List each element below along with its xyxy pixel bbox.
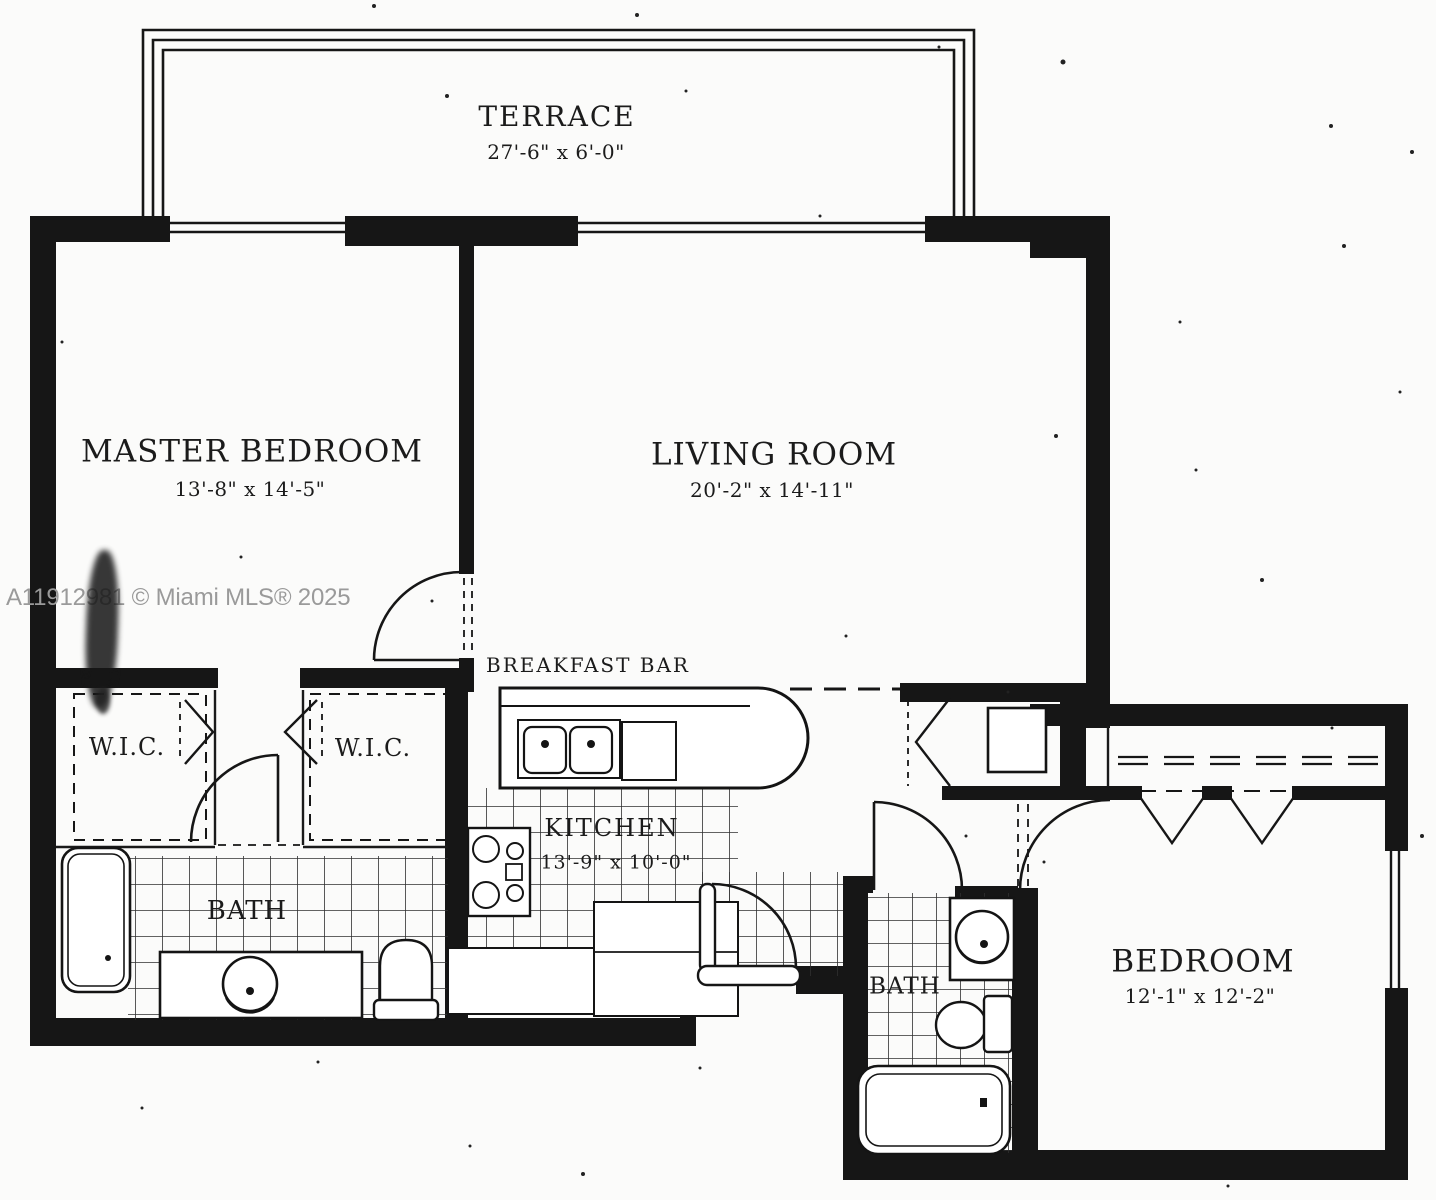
wic-left-label: W.I.C. <box>89 735 165 759</box>
master-bathtub <box>62 848 130 992</box>
stove-cooktop <box>468 828 530 916</box>
bedroom-closet-bifold-left <box>1140 797 1204 843</box>
water-heater-unit <box>988 708 1046 772</box>
second-bath-toilet-tank <box>984 996 1012 1052</box>
kitchen-label: KITCHEN <box>544 816 679 840</box>
dishwasher <box>622 722 676 780</box>
living-room-label: LIVING ROOM <box>651 440 897 471</box>
master-bedroom-label: MASTER BEDROOM <box>81 437 423 468</box>
kitchen-sink-basin-left <box>524 727 566 773</box>
hall-closet-sliding-door <box>1118 757 1380 764</box>
living-room-dims: 20'-2" x 14'-11" <box>690 480 854 500</box>
second-bath-door <box>874 802 962 890</box>
wic-right-label: W.I.C. <box>335 736 411 760</box>
master-bedroom-door <box>374 572 472 660</box>
living-room-slider-window <box>578 223 925 232</box>
kitchen-base-cabinet <box>448 948 594 1014</box>
master-bath-label: BATH <box>207 898 287 924</box>
master-bath-sink <box>223 957 277 1011</box>
bedroom-window <box>1391 848 1399 995</box>
wic-right-bifold-door <box>285 700 317 764</box>
kitchen-pantry-cabinet <box>594 902 738 1016</box>
bedroom-door <box>1018 800 1110 890</box>
bedroom-label: BEDROOM <box>1111 947 1294 978</box>
terrace-label: TERRACE <box>478 103 635 131</box>
wic-right-shelving <box>310 694 448 840</box>
scan-smudge-artifact-small <box>96 688 110 714</box>
kitchen-sink-basin-right <box>570 727 612 773</box>
master-bath-door <box>191 755 300 845</box>
wic-left-bifold-door <box>185 700 213 764</box>
second-bathtub <box>858 1066 1010 1154</box>
master-bedroom-dims: 13'-8" x 14'-5" <box>175 479 326 499</box>
bedroom-dims: 12'-1" x 12'-2" <box>1125 986 1276 1006</box>
floor-plan-page: TERRACE 27'-6" x 6'-0" MASTER BEDROOM 13… <box>0 0 1436 1200</box>
utility-closet-unit <box>988 708 1046 772</box>
second-bath-label: BATH <box>869 976 941 999</box>
utility-closet-bifold-door <box>916 698 950 786</box>
master-bath-toilet-seat <box>374 1000 438 1020</box>
master-bedroom-slider-window <box>170 223 345 232</box>
breakfast-bar-label: BREAKFAST BAR <box>486 655 690 675</box>
mls-watermark: A11912981 © Miami MLS® 2025 <box>6 584 350 612</box>
second-bath-toilet-bowl <box>936 1002 986 1048</box>
kitchen-dims: 13'-9" x 10'-0" <box>540 854 691 873</box>
terrace-dims: 27'-6" x 6'-0" <box>487 142 625 162</box>
wic-left-shelving <box>74 694 206 840</box>
master-bath-toilet-bowl <box>380 940 432 1002</box>
bedroom-closet-bifold-right <box>1230 797 1294 843</box>
